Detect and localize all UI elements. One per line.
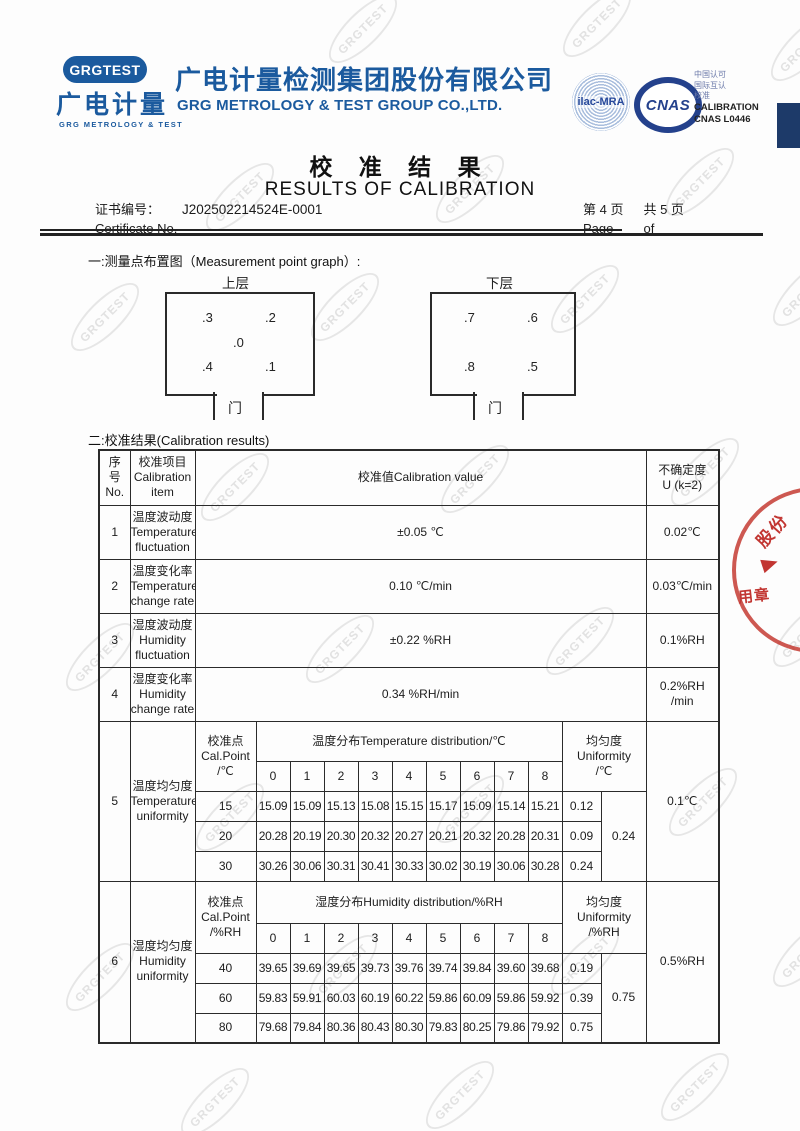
row-value: 0.10 ℃/min xyxy=(195,559,646,613)
value-cell: 30.31 xyxy=(324,851,358,881)
uniformity-value: 0.12 xyxy=(562,791,601,821)
value-cell: 39.76 xyxy=(392,953,426,983)
certificate-page: GRGTEST GRGTEST GRGTEST GRGTEST GRGTEST … xyxy=(0,0,800,1131)
row-uncertainty: 0.1℃ xyxy=(646,721,719,881)
calibration-label: CALIBRATION xyxy=(694,102,759,114)
row-item: 温度变化率 Temperature change rate xyxy=(130,559,195,613)
col-index: 4 xyxy=(392,923,426,953)
cnas-label: CNAS xyxy=(646,97,691,114)
value-cell: 80.43 xyxy=(358,1013,392,1043)
col-index: 4 xyxy=(392,761,426,791)
value-cell: 15.13 xyxy=(324,791,358,821)
row-no: 1 xyxy=(99,505,130,559)
col-index: 8 xyxy=(528,761,562,791)
cal-point: 15 xyxy=(195,791,256,821)
value-cell: 15.09 xyxy=(290,791,324,821)
value-cell: 20.19 xyxy=(290,821,324,851)
col-index: 0 xyxy=(256,923,290,953)
cnas-number: CNAS L0446 xyxy=(694,114,759,126)
point-0: .0 xyxy=(233,335,244,350)
stamp-text: 股份 xyxy=(749,507,793,552)
measurement-box-upper: .3 .2 .0 .4 .1 xyxy=(165,292,315,396)
table-row: 2 温度变化率 Temperature change rate 0.10 ℃/m… xyxy=(99,559,719,613)
value-cell: 79.83 xyxy=(426,1013,460,1043)
logo-name-cn: 广电计量 xyxy=(56,85,168,121)
row-uncertainty: 0.5%RH xyxy=(646,881,719,1043)
value-cell: 30.28 xyxy=(528,851,562,881)
value-cell: 59.83 xyxy=(256,983,290,1013)
header-value: 校准值Calibration value xyxy=(195,450,646,505)
value-cell: 79.92 xyxy=(528,1013,562,1043)
value-cell: 60.09 xyxy=(460,983,494,1013)
value-cell: 39.69 xyxy=(290,953,324,983)
watermark: GRGTEST xyxy=(763,248,800,336)
col-index: 6 xyxy=(460,761,494,791)
accreditation-line: 校准 xyxy=(694,91,759,102)
company-name-en: GRG METROLOGY & TEST GROUP CO.,LTD. xyxy=(177,97,502,114)
ilac-mra-label: ilac-MRA xyxy=(576,96,625,108)
point-1: .1 xyxy=(265,359,276,374)
watermark: GRGTEST xyxy=(61,273,149,361)
header-rule-thin xyxy=(40,229,622,231)
row-value: 0.34 %RH/min xyxy=(195,667,646,721)
table-row: 4 湿度变化率 Humidity change rate 0.34 %RH/mi… xyxy=(99,667,719,721)
measurement-box-lower: .7 .6 .8 .5 xyxy=(430,292,576,396)
col-index: 5 xyxy=(426,923,460,953)
cal-point: 40 xyxy=(195,953,256,983)
col-index: 1 xyxy=(290,923,324,953)
value-cell: 39.84 xyxy=(460,953,494,983)
col-index: 2 xyxy=(324,923,358,953)
row-value: ±0.05 ℃ xyxy=(195,505,646,559)
row-value: ±0.22 %RH xyxy=(195,613,646,667)
corner-navy-block xyxy=(777,103,800,148)
uniformity-value: 0.75 xyxy=(562,1013,601,1043)
accreditation-line: 国际互认 xyxy=(694,81,759,92)
door-gap xyxy=(477,394,524,397)
door-line xyxy=(522,392,524,420)
value-cell: 30.06 xyxy=(290,851,324,881)
stamp-star-fragment xyxy=(760,555,780,573)
col-index: 1 xyxy=(290,761,324,791)
point-6: .6 xyxy=(527,310,538,325)
row-uncertainty: 0.1%RH xyxy=(646,613,719,667)
watermark: GRGTEST xyxy=(171,1058,259,1131)
uniformity-value: 0.19 xyxy=(562,953,601,983)
door-label-upper: 门 xyxy=(228,398,242,418)
value-cell: 80.36 xyxy=(324,1013,358,1043)
row-no: 4 xyxy=(99,667,130,721)
watermark: GRGTEST xyxy=(761,3,800,91)
header-item: 校准项目 Calibration item xyxy=(130,450,195,505)
section-one-title: 一:测量点布置图（Measurement point graph）: xyxy=(88,251,360,270)
ilac-mra-logo: ilac-MRA xyxy=(572,73,630,131)
header-no: 序 号 No. xyxy=(99,450,130,505)
door-label-lower: 门 xyxy=(488,398,502,418)
value-cell: 39.68 xyxy=(528,953,562,983)
value-cell: 79.68 xyxy=(256,1013,290,1043)
row-item: 温度波动度 Temperature fluctuation xyxy=(130,505,195,559)
red-company-stamp: 股份 用章 xyxy=(732,487,800,653)
value-cell: 30.06 xyxy=(494,851,528,881)
uniformity-overall: 0.24 xyxy=(601,791,646,881)
value-cell: 59.92 xyxy=(528,983,562,1013)
col-index: 8 xyxy=(528,923,562,953)
uniformity-value: 0.39 xyxy=(562,983,601,1013)
value-cell: 60.03 xyxy=(324,983,358,1013)
row-no: 5 xyxy=(99,721,130,881)
header-rule-thick xyxy=(40,233,763,236)
cal-point: 80 xyxy=(195,1013,256,1043)
row-no: 6 xyxy=(99,881,130,1043)
point-3: .3 xyxy=(202,310,213,325)
uniformity-header: 均匀度 Uniformity /℃ xyxy=(562,721,646,791)
cal-point: 30 xyxy=(195,851,256,881)
point-5: .5 xyxy=(527,359,538,374)
value-cell: 15.09 xyxy=(256,791,290,821)
page-title-en: RESULTS OF CALIBRATION xyxy=(0,179,800,201)
value-cell: 15.15 xyxy=(392,791,426,821)
certificate-number: J202502214524E-0001 xyxy=(182,202,322,217)
table-row: 1 温度波动度 Temperature fluctuation ±0.05 ℃ … xyxy=(99,505,719,559)
value-cell: 20.32 xyxy=(358,821,392,851)
point-8: .8 xyxy=(464,359,475,374)
value-cell: 59.86 xyxy=(494,983,528,1013)
cal-point-header: 校准点 Cal.Point /%RH xyxy=(195,881,256,953)
row-uncertainty: 0.03℃/min xyxy=(646,559,719,613)
value-cell: 39.65 xyxy=(256,953,290,983)
upper-layer-label: 上层 xyxy=(222,272,249,292)
col-index: 5 xyxy=(426,761,460,791)
value-cell: 30.33 xyxy=(392,851,426,881)
value-cell: 20.32 xyxy=(460,821,494,851)
table-row: 3 湿度波动度 Humidity fluctuation ±0.22 %RH 0… xyxy=(99,613,719,667)
accreditation-line: 中国认可 xyxy=(694,70,759,81)
certificate-label-cn: 证书编号： xyxy=(95,202,160,217)
value-cell: 15.09 xyxy=(460,791,494,821)
row-uncertainty: 0.2%RH /min xyxy=(646,667,719,721)
uniformity-overall: 0.75 xyxy=(601,953,646,1043)
door-gap xyxy=(217,394,264,397)
cal-point: 60 xyxy=(195,983,256,1013)
uniformity-header: 均匀度 Uniformity /%RH xyxy=(562,881,646,953)
door-line xyxy=(262,392,264,420)
stamp-text: 用章 xyxy=(737,583,771,607)
cal-point: 20 xyxy=(195,821,256,851)
door-line xyxy=(473,392,475,420)
uniformity-value: 0.24 xyxy=(562,851,601,881)
value-cell: 20.28 xyxy=(494,821,528,851)
company-name-cn: 广电计量检测集团股份有限公司 xyxy=(175,60,553,97)
value-cell: 79.84 xyxy=(290,1013,324,1043)
cnas-logo: CNAS xyxy=(634,77,702,133)
col-index: 2 xyxy=(324,761,358,791)
value-cell: 15.21 xyxy=(528,791,562,821)
col-index: 3 xyxy=(358,923,392,953)
value-cell: 20.30 xyxy=(324,821,358,851)
distribution-header: 温度分布Temperature distribution/℃ xyxy=(256,721,562,761)
uniformity-value: 0.09 xyxy=(562,821,601,851)
value-cell: 30.19 xyxy=(460,851,494,881)
value-cell: 39.73 xyxy=(358,953,392,983)
point-2: .2 xyxy=(265,310,276,325)
page-total: 共 5 页 xyxy=(643,199,683,218)
col-index: 7 xyxy=(494,761,528,791)
page-current: 第 4 页 xyxy=(583,199,623,218)
row-no: 3 xyxy=(99,613,130,667)
value-cell: 59.91 xyxy=(290,983,324,1013)
uniformity-header-row: 5 温度均匀度 Temperature uniformity 校准点 Cal.P… xyxy=(99,721,719,761)
section-two-title: 二:校准结果(Calibration results) xyxy=(88,430,269,449)
row-item: 温度均匀度 Temperature uniformity xyxy=(130,721,195,881)
grgtest-logo-badge: GRGTEST xyxy=(63,56,147,83)
value-cell: 80.25 xyxy=(460,1013,494,1043)
col-index: 7 xyxy=(494,923,528,953)
col-index: 0 xyxy=(256,761,290,791)
accreditation-text: 中国认可 国际互认 校准 CALIBRATION CNAS L0446 xyxy=(694,70,759,126)
value-cell: 79.86 xyxy=(494,1013,528,1043)
value-cell: 59.86 xyxy=(426,983,460,1013)
row-item: 湿度波动度 Humidity fluctuation xyxy=(130,613,195,667)
value-cell: 15.08 xyxy=(358,791,392,821)
value-cell: 15.14 xyxy=(494,791,528,821)
value-cell: 15.17 xyxy=(426,791,460,821)
value-cell: 39.65 xyxy=(324,953,358,983)
table-header-row: 序 号 No. 校准项目 Calibration item 校准值Calibra… xyxy=(99,450,719,505)
door-line xyxy=(213,392,215,420)
uniformity-header-row: 6 湿度均匀度 Humidity uniformity 校准点 Cal.Poin… xyxy=(99,881,719,923)
page-title-cn: 校 准 结 果 xyxy=(0,148,800,182)
point-4: .4 xyxy=(202,359,213,374)
col-index: 3 xyxy=(358,761,392,791)
calibration-results-table: 序 号 No. 校准项目 Calibration item 校准值Calibra… xyxy=(98,449,720,1044)
value-cell: 30.41 xyxy=(358,851,392,881)
row-uncertainty: 0.02℃ xyxy=(646,505,719,559)
value-cell: 20.21 xyxy=(426,821,460,851)
cal-point-header: 校准点 Cal.Point /℃ xyxy=(195,721,256,791)
point-7: .7 xyxy=(464,310,475,325)
distribution-header: 湿度分布Humidity distribution/%RH xyxy=(256,881,562,923)
value-cell: 20.27 xyxy=(392,821,426,851)
watermark: GRGTEST xyxy=(651,1043,739,1131)
header-uncertainty: 不确定度 U (k=2) xyxy=(646,450,719,505)
value-cell: 60.22 xyxy=(392,983,426,1013)
logo-name-en: GRG METROLOGY & TEST xyxy=(59,120,183,129)
watermark: GRGTEST xyxy=(763,909,800,997)
value-cell: 39.74 xyxy=(426,953,460,983)
value-cell: 39.60 xyxy=(494,953,528,983)
col-index: 6 xyxy=(460,923,494,953)
value-cell: 30.02 xyxy=(426,851,460,881)
value-cell: 80.30 xyxy=(392,1013,426,1043)
value-cell: 30.26 xyxy=(256,851,290,881)
value-cell: 20.28 xyxy=(256,821,290,851)
value-cell: 20.31 xyxy=(528,821,562,851)
watermark: GRGTEST xyxy=(416,1051,504,1131)
lower-layer-label: 下层 xyxy=(486,272,513,292)
watermark: GRGTEST xyxy=(553,0,641,67)
value-cell: 60.19 xyxy=(358,983,392,1013)
row-item: 湿度均匀度 Humidity uniformity xyxy=(130,881,195,1043)
row-no: 2 xyxy=(99,559,130,613)
row-item: 湿度变化率 Humidity change rate xyxy=(130,667,195,721)
